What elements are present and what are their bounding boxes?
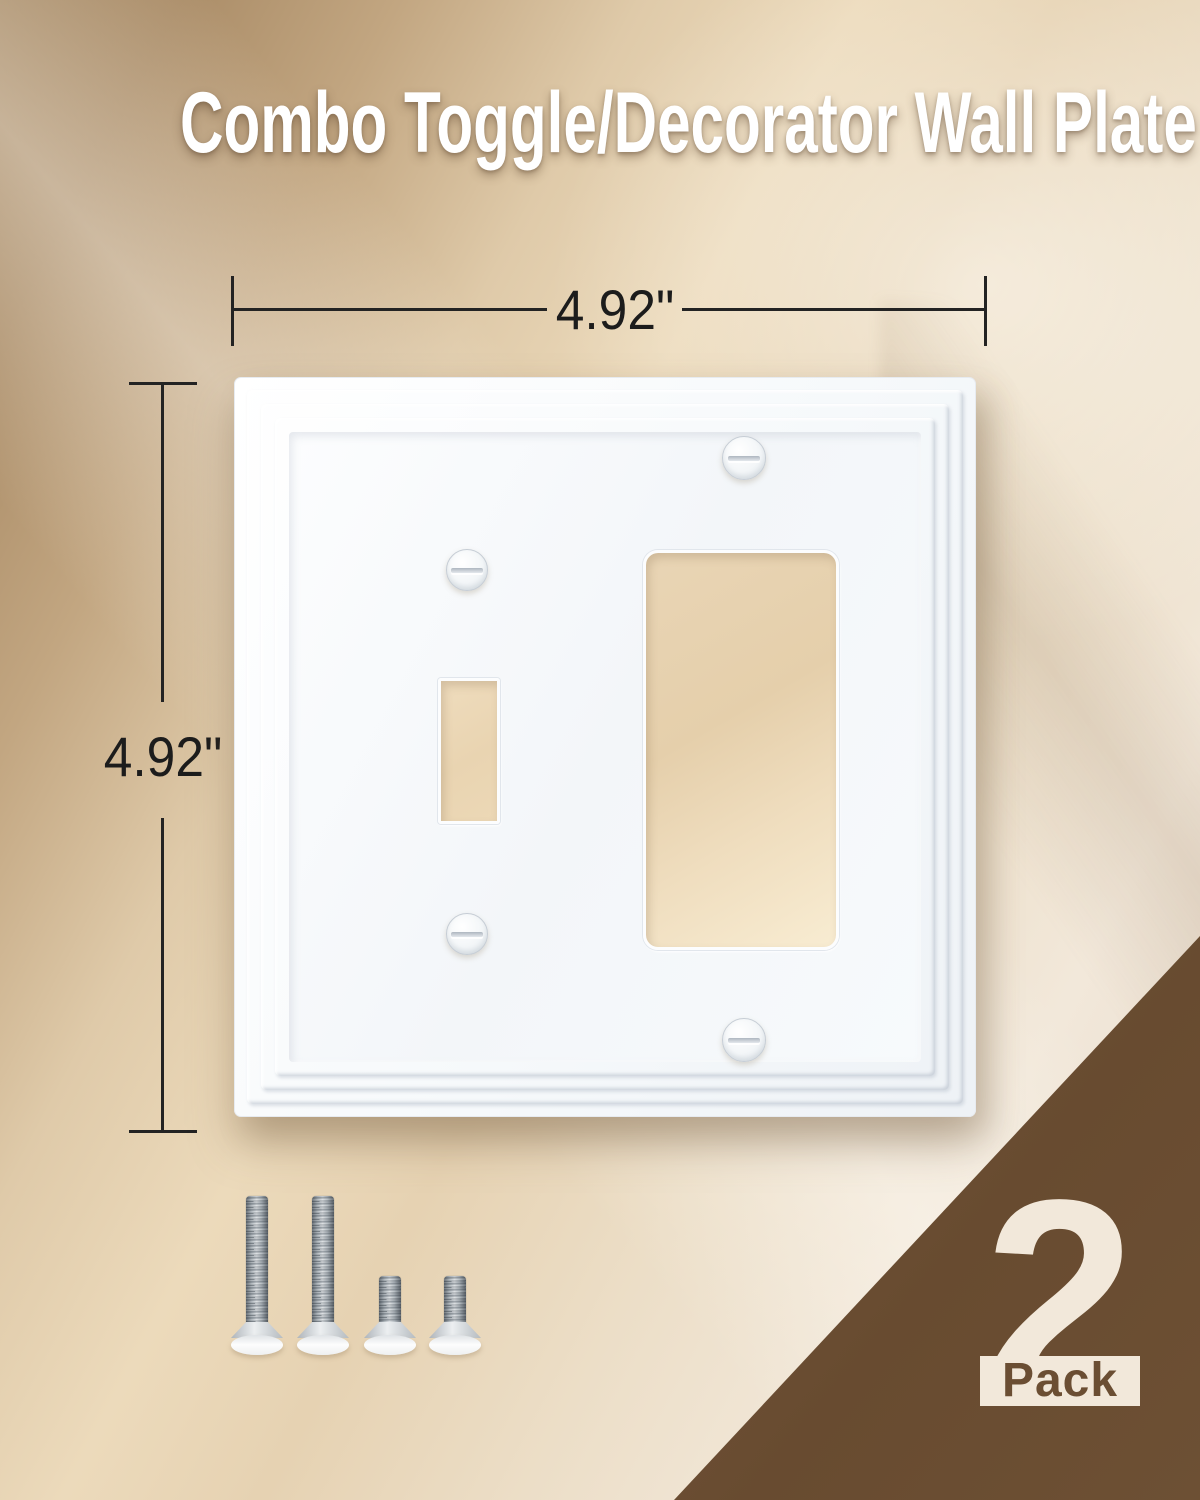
mounting-screw-long-icon — [297, 1196, 349, 1356]
screw-head-cap — [297, 1335, 349, 1355]
product-image: Combo Toggle/Decorator Wall Plate 4.92" … — [0, 0, 1200, 1500]
wall-plate — [234, 377, 976, 1117]
height-dimension-line-top — [161, 384, 164, 702]
screw-thread — [312, 1196, 334, 1328]
screw-head-cap — [364, 1335, 416, 1355]
mounting-screw-long-icon — [231, 1196, 283, 1356]
screw-thread — [444, 1276, 466, 1328]
page-title: Combo Toggle/Decorator Wall Plate — [180, 80, 1020, 166]
width-dimension-tick-right — [984, 276, 987, 346]
width-dimension-line-right — [682, 308, 985, 311]
plate-screw-top-icon — [722, 436, 766, 480]
mounting-screw-short-icon — [429, 1276, 481, 1356]
screw-slot-icon — [728, 1038, 761, 1043]
pack-label-box: Pack — [980, 1356, 1140, 1406]
screw-head-cap — [429, 1335, 481, 1355]
width-dimension-line-left — [233, 308, 547, 311]
height-dimension-label: 4.92" — [89, 726, 236, 788]
mounting-screw-short-icon — [364, 1276, 416, 1356]
screw-slot-icon — [728, 456, 761, 461]
width-dimension-label: 4.92" — [546, 279, 684, 341]
width-dimension-tick-left — [231, 276, 234, 346]
screw-slot-icon — [451, 568, 482, 573]
pack-label: Pack — [1002, 1357, 1118, 1405]
plate-screw-bottom-icon — [722, 1018, 766, 1062]
plate-screw-left-lower-icon — [446, 913, 488, 955]
height-dimension-line-bottom — [161, 818, 164, 1132]
screw-thread — [246, 1196, 268, 1328]
plate-screw-left-upper-icon — [446, 549, 488, 591]
screw-slot-icon — [451, 932, 482, 937]
toggle-opening — [438, 678, 500, 824]
screw-thread — [379, 1276, 401, 1328]
decorator-opening — [643, 550, 839, 950]
screw-head-cap — [231, 1335, 283, 1355]
